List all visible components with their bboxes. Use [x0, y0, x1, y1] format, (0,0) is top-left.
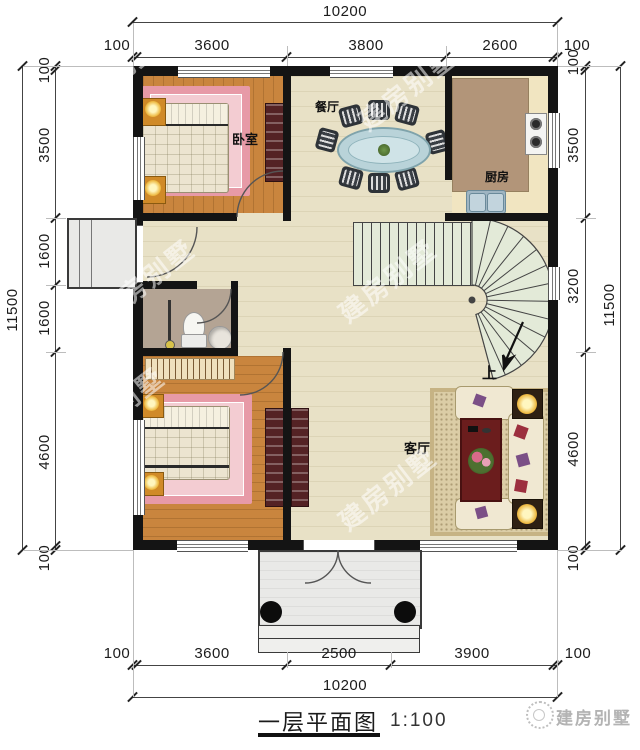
dim-right-seg: 3200 [565, 251, 581, 321]
dining-chair [368, 100, 390, 120]
dim-left-seg: 3500 [36, 110, 52, 180]
lamp-table [512, 499, 543, 529]
toilet-tank [181, 334, 207, 348]
lamp-table [512, 389, 543, 419]
living-cabinet [291, 408, 309, 507]
wall-bathroom-right [231, 281, 238, 356]
dim-right-seg: 100 [565, 523, 581, 593]
dim-top-seg: 2600 [460, 37, 540, 54]
dim-right-seg: 3500 [565, 110, 581, 180]
dim-right-total: 11500 [601, 270, 617, 340]
title-underline [258, 733, 380, 737]
dim-left-seg: 100 [36, 523, 52, 593]
wall-kitchen-left [445, 66, 452, 180]
dim-right-seg: 100 [565, 27, 581, 97]
dim-line-top-segments [133, 57, 558, 58]
logo-icon [526, 701, 554, 729]
wall-bedroom1-bottom [133, 213, 237, 221]
wall-bathroom-top-a [142, 281, 197, 289]
title-scale: 1:100 [390, 710, 448, 732]
sofa-bottom [455, 498, 514, 530]
porch-column [260, 601, 282, 623]
dim-right-seg: 4600 [565, 414, 581, 484]
dim-left-seg: 1600 [36, 216, 52, 286]
dim-bottom-seg: 3600 [172, 645, 252, 662]
window-dining-top [330, 66, 393, 78]
dim-bottom-seg: 2500 [299, 645, 379, 662]
floor-plan: 卧室 餐厅 厨房 客厅 上 建房别墅 建房别墅 建房别墅 建房别墅 建房别墅 建… [0, 0, 640, 750]
dim-bottom-seg: 100 [558, 645, 598, 662]
window-bedroom1-left [133, 137, 145, 200]
bedroom2-wardrobe [265, 408, 285, 507]
bedroom2-closet [145, 358, 235, 380]
porch-column [394, 601, 416, 623]
dim-line-bottom-segments [133, 665, 558, 666]
logo-watermark-text: 建房别墅 [556, 704, 632, 729]
dining-chair [368, 173, 390, 193]
front-door-opening [303, 540, 375, 550]
dim-line-bottom-total [133, 697, 558, 698]
dim-line-left-inner [55, 66, 56, 550]
shower-rod [168, 300, 171, 344]
dim-left-total: 11500 [4, 275, 20, 345]
bedroom1-wardrobe [265, 103, 285, 182]
dim-top-seg: 3600 [172, 37, 252, 54]
dim-left-seg: 4600 [36, 417, 52, 487]
sofa-top [455, 386, 514, 420]
dim-left-seg: 1600 [36, 283, 52, 353]
dim-line-left-outer [22, 66, 23, 550]
table-centerpiece [378, 144, 390, 156]
room-label-living: 客厅 [404, 438, 430, 457]
window-living-bottom [420, 540, 517, 552]
lamp [144, 475, 159, 490]
dim-bottom-seg: 100 [97, 645, 137, 662]
room-label-kitchen: 厨房 [485, 168, 509, 185]
flower-bouquet [468, 448, 494, 474]
wall-bedroom2-top [133, 348, 237, 356]
lamp [145, 101, 161, 117]
room-label-bedroom: 卧室 [232, 129, 258, 148]
sofa-main [508, 413, 544, 504]
stairs-straight-flight [353, 222, 474, 286]
dim-line-top-total [133, 22, 558, 23]
lamp [144, 396, 159, 411]
dim-bottom-total: 10200 [305, 677, 385, 694]
dim-top-seg: 3800 [326, 37, 406, 54]
window-bedroom2-left [133, 420, 145, 515]
stairs-up-label: 上 [482, 362, 497, 383]
window-bedroom2-bottom [177, 540, 248, 552]
kitchen-sink [466, 190, 506, 214]
stove [525, 113, 547, 155]
dim-line-right-outer [620, 66, 621, 550]
wall-kitchen-bottom [445, 213, 558, 221]
wall-bedroom1-right [283, 66, 291, 221]
wall-bedroom2-right [283, 348, 291, 550]
window-bedroom1-top [178, 66, 270, 78]
dim-top-seg: 100 [97, 37, 137, 54]
dim-top-total: 10200 [305, 3, 385, 20]
wash-basin [208, 326, 232, 350]
porch-side [67, 218, 137, 289]
coffee-table [460, 418, 502, 502]
lamp [145, 180, 161, 196]
dim-bottom-seg: 3900 [432, 645, 512, 662]
window-kitchen-right [548, 113, 560, 168]
window-stairs-right [548, 267, 560, 300]
dining-table [337, 127, 431, 173]
dim-line-right-inner [585, 66, 586, 550]
room-label-dining: 餐厅 [315, 98, 339, 115]
